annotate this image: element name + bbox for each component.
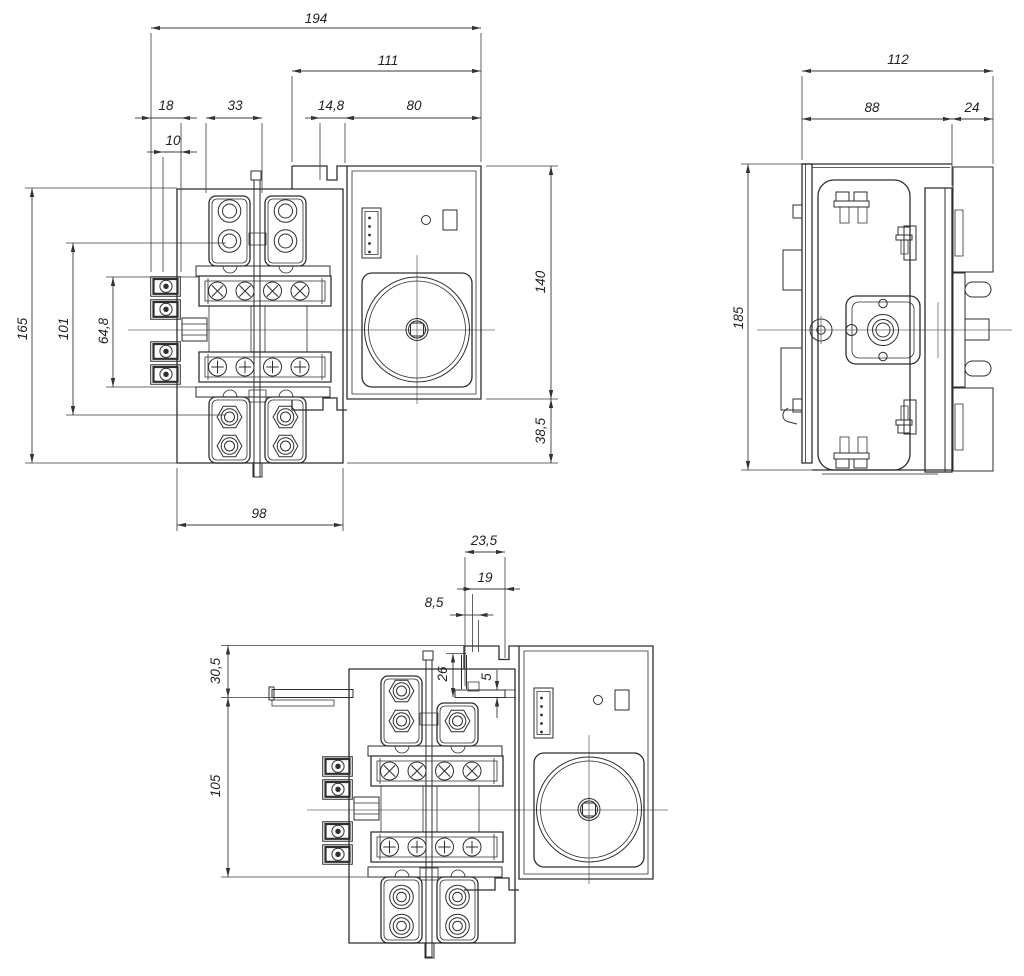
dim-bottom-23-5: 23,5 [465,533,505,686]
dim-front-18: 18 [135,98,197,272]
dim-front-10: 10 [147,133,197,272]
bottom-upper-busbar [371,756,503,786]
dim-label-194: 194 [305,11,328,26]
bottom-center-rod [420,651,479,957]
dim-label-23-5: 23,5 [470,533,498,548]
side-din-clip [781,250,832,424]
front-upper-busbar [199,276,331,306]
dim-label-140: 140 [533,270,548,293]
dim-front-194: 194 [151,11,481,272]
side-view [757,164,1012,474]
dim-label-185: 185 [731,306,746,329]
bottom-lower-strip [368,867,502,877]
dim-label-88: 88 [864,100,880,115]
dim-label-26: 26 [435,666,450,683]
bottom-indicator-hole [594,696,603,705]
front-upper-terminal-pads [209,196,306,266]
bottom-lower-terminal-pads [381,877,478,943]
front-indicator-hole [422,216,431,225]
front-view [128,166,495,477]
dim-front-140: 140 [486,166,558,399]
dim-label-98: 98 [251,506,267,521]
front-connector-block [362,208,381,258]
dim-label-101: 101 [56,318,71,341]
dim-front-33: 33 [206,98,262,193]
bottom-upper-terminal-pads [381,676,478,746]
bottom-enclosure [464,646,653,890]
side-body [818,180,916,470]
bottom-pole-separators [381,786,479,832]
bottom-lower-busbar [371,832,503,862]
dim-bottom-5: 5 [479,670,516,718]
bottom-connector-block [534,688,553,738]
side-terminal-bolts-top [834,192,912,254]
dim-label-105: 105 [208,774,223,797]
dim-label-8-5: 8,5 [425,595,444,610]
dim-label-165: 165 [15,317,30,340]
dim-side-185: 185 [731,164,812,470]
bottom-dimensions: 23,5 19 8,5 26 5 30,5 105 [208,533,520,877]
drawing-canvas: 194 111 18 10 33 14,8 80 165 [0,0,1024,976]
front-upper-strip [196,266,330,276]
side-dimensions: 112 88 24 185 [731,52,993,470]
front-dimensions: 194 111 18 10 33 14,8 80 165 [15,11,558,531]
dim-bottom-8-5: 8,5 [425,595,494,652]
dim-side-24: 24 [952,100,993,119]
dim-label-64-8: 64,8 [96,317,111,344]
dim-label-112: 112 [887,52,909,67]
dim-label-80: 80 [406,98,422,113]
dim-front-14-8: 14,8 [305,98,360,180]
bottom-label-window [615,690,629,710]
bottom-view [269,646,668,958]
front-enclosure [292,166,481,410]
dim-label-111: 111 [378,53,399,68]
bottom-upper-strip [368,746,502,756]
dim-front-38-5: 38,5 [347,399,558,463]
dim-label-24: 24 [963,100,979,115]
dim-label-30-5: 30,5 [208,657,223,684]
side-terminal-bolts-bottom [834,406,912,468]
dim-label-5: 5 [479,673,494,681]
dim-label-18: 18 [158,98,174,113]
dim-label-38-5: 38,5 [533,417,548,444]
dim-label-19: 19 [477,570,493,585]
dim-front-80: 80 [345,98,481,118]
front-center-rod [249,171,266,477]
front-label-window [443,210,457,230]
dim-front-101: 101 [56,243,226,415]
front-lower-strip [196,387,330,397]
dim-side-88: 88 [802,100,952,186]
front-lower-busbar [199,352,331,382]
dim-label-10: 10 [165,133,181,148]
dim-bottom-105: 105 [208,698,381,878]
engineering-drawing: 194 111 18 10 33 14,8 80 165 [0,0,1024,976]
dim-front-64-8: 64,8 [96,277,198,387]
front-pole-separators [209,306,307,352]
dim-label-14-8: 14,8 [318,98,345,113]
dim-label-33: 33 [227,98,243,113]
dim-bottom-19: 19 [457,570,520,652]
